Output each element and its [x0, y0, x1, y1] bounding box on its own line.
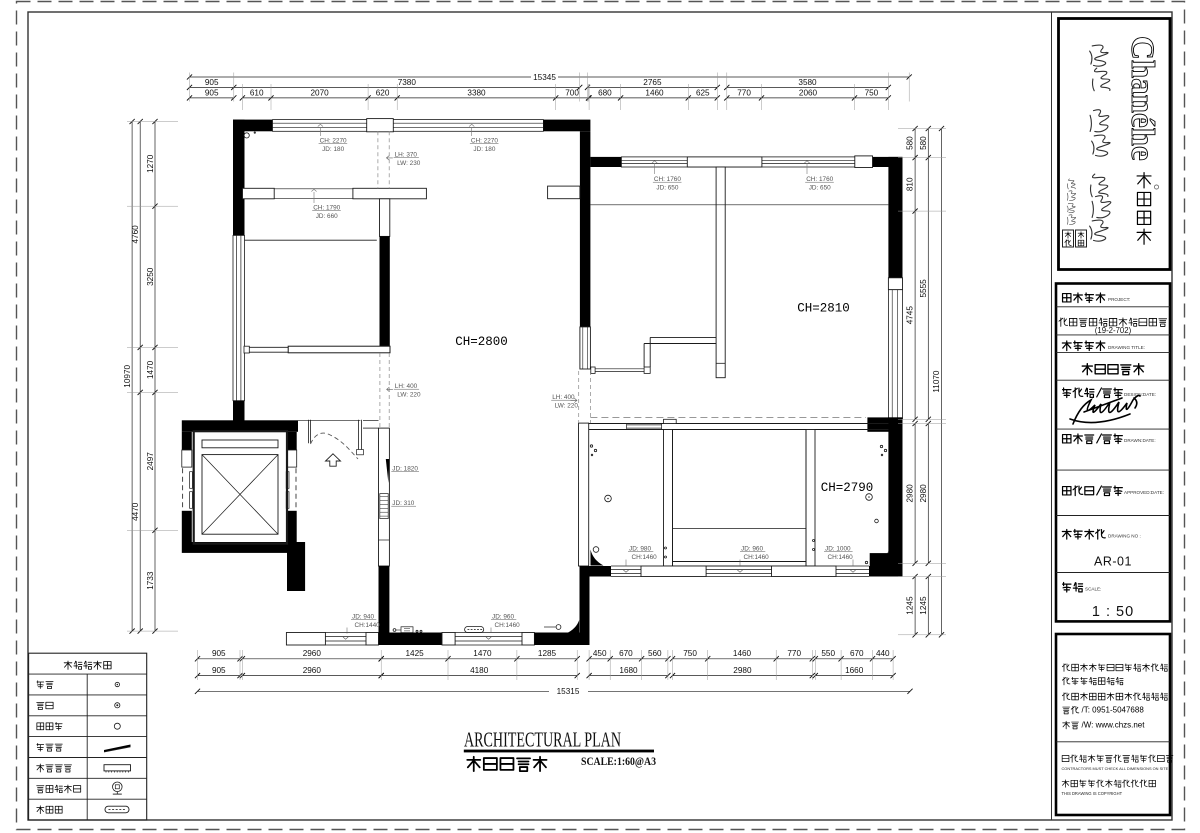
svg-text:CH=2800: CH=2800	[455, 335, 508, 349]
svg-text:905: 905	[212, 649, 226, 658]
svg-text:2060: 2060	[799, 88, 818, 97]
svg-text:CH:1460: CH:1460	[632, 554, 658, 561]
svg-text:2980: 2980	[733, 666, 752, 675]
svg-text:700: 700	[565, 88, 579, 97]
svg-text:905: 905	[205, 88, 219, 97]
svg-text:LW: 220: LW: 220	[555, 403, 579, 410]
svg-text:CH:1460: CH:1460	[828, 554, 854, 561]
svg-text:JD: 650: JD: 650	[656, 185, 678, 192]
svg-text:3250: 3250	[146, 267, 155, 286]
svg-text:1 : 50: 1 : 50	[1092, 604, 1134, 620]
svg-text:THIS DRAWING IS COPYRIGHT: THIS DRAWING IS COPYRIGHT	[1062, 791, 1123, 796]
svg-text:PROJECT:: PROJECT:	[1108, 297, 1130, 302]
svg-text:770: 770	[737, 88, 751, 97]
svg-text:670: 670	[850, 649, 864, 658]
svg-text:810: 810	[906, 177, 915, 191]
svg-text:DRAWING TITLE:: DRAWING TITLE:	[1108, 345, 1145, 350]
svg-text:LW: 220: LW: 220	[397, 392, 421, 399]
svg-text:APPROVED:DATE:: APPROVED:DATE:	[1124, 490, 1164, 495]
svg-text:1680: 1680	[619, 666, 638, 675]
svg-text:JD: 650: JD: 650	[809, 185, 831, 192]
svg-text:15315: 15315	[557, 687, 580, 696]
svg-text:4745: 4745	[906, 306, 915, 325]
svg-text:550: 550	[821, 649, 835, 658]
svg-text:905: 905	[205, 78, 219, 87]
svg-text:610: 610	[250, 88, 264, 97]
svg-text:770: 770	[787, 649, 801, 658]
svg-text:1733: 1733	[146, 571, 155, 590]
svg-text:1285: 1285	[538, 649, 557, 658]
svg-text:1270: 1270	[146, 154, 155, 173]
svg-text:ARCHITECTURAL PLAN: ARCHITECTURAL PLAN	[464, 728, 621, 752]
svg-text:1470: 1470	[473, 649, 492, 658]
svg-text:670: 670	[619, 649, 633, 658]
svg-text:1425: 1425	[405, 649, 424, 658]
svg-text:1460: 1460	[645, 88, 664, 97]
svg-text:/T: 0951-5047688: /T: 0951-5047688	[1082, 706, 1145, 715]
svg-text:CONTRACTORS MUST CHECK ALL DIM: CONTRACTORS MUST CHECK ALL DIMENSIONS ON…	[1062, 766, 1169, 771]
svg-text:SCALE:1:60@A3: SCALE:1:60@A3	[581, 756, 656, 768]
svg-text:3380: 3380	[467, 88, 486, 97]
svg-text:CH:1460: CH:1460	[495, 622, 521, 629]
svg-text:1470: 1470	[146, 360, 155, 379]
svg-text:905: 905	[212, 666, 226, 675]
svg-text:AR-01: AR-01	[1094, 555, 1132, 569]
svg-text:DRAWN:DATE:: DRAWN:DATE:	[1124, 438, 1156, 443]
svg-text:1460: 1460	[733, 649, 752, 658]
svg-text:560: 560	[648, 649, 662, 658]
svg-text:580: 580	[919, 136, 928, 150]
svg-text:580: 580	[906, 136, 915, 150]
svg-text:JD: 180: JD: 180	[473, 146, 495, 153]
svg-text:1660: 1660	[845, 666, 864, 675]
svg-text:15345: 15345	[533, 73, 556, 82]
svg-text:4180: 4180	[470, 666, 489, 675]
svg-text:CH=2810: CH=2810	[797, 302, 850, 316]
svg-text:620: 620	[376, 88, 390, 97]
svg-text:CH=2790: CH=2790	[821, 481, 874, 495]
svg-text:3580: 3580	[798, 78, 817, 87]
svg-text:750: 750	[683, 649, 697, 658]
svg-text:2497: 2497	[146, 452, 155, 471]
svg-text:625: 625	[696, 88, 710, 97]
svg-text:/W: www.chzs.net: /W: www.chzs.net	[1082, 721, 1146, 730]
svg-text:2765: 2765	[643, 78, 662, 87]
svg-text:11070: 11070	[932, 370, 941, 393]
svg-text:2980: 2980	[919, 484, 928, 503]
svg-text:680: 680	[598, 88, 612, 97]
svg-text:(19-2-702): (19-2-702)	[1095, 326, 1132, 335]
svg-text:750: 750	[865, 88, 879, 97]
svg-text:Chanéhe: Chanéhe	[1124, 36, 1160, 161]
svg-text:SCALE:: SCALE:	[1085, 587, 1101, 592]
svg-text:10970: 10970	[123, 364, 132, 387]
svg-text:LW: 230: LW: 230	[397, 160, 421, 167]
svg-text:2960: 2960	[303, 666, 322, 675]
svg-text:2960: 2960	[303, 649, 322, 658]
svg-text:7380: 7380	[398, 78, 417, 87]
svg-text:JD: 660: JD: 660	[316, 213, 338, 220]
svg-text:1245: 1245	[919, 596, 928, 615]
svg-text:2980: 2980	[906, 484, 915, 503]
svg-text:CH:1440: CH:1440	[355, 622, 381, 629]
svg-text:1245: 1245	[906, 596, 915, 615]
svg-text:JD: 180: JD: 180	[322, 146, 344, 153]
svg-text:CH:1460: CH:1460	[744, 554, 770, 561]
svg-text:5555: 5555	[919, 279, 928, 298]
svg-text:450: 450	[593, 649, 607, 658]
svg-text:2070: 2070	[310, 88, 329, 97]
svg-text:DRAWING NO :: DRAWING NO :	[1108, 534, 1141, 539]
svg-text:440: 440	[876, 649, 890, 658]
